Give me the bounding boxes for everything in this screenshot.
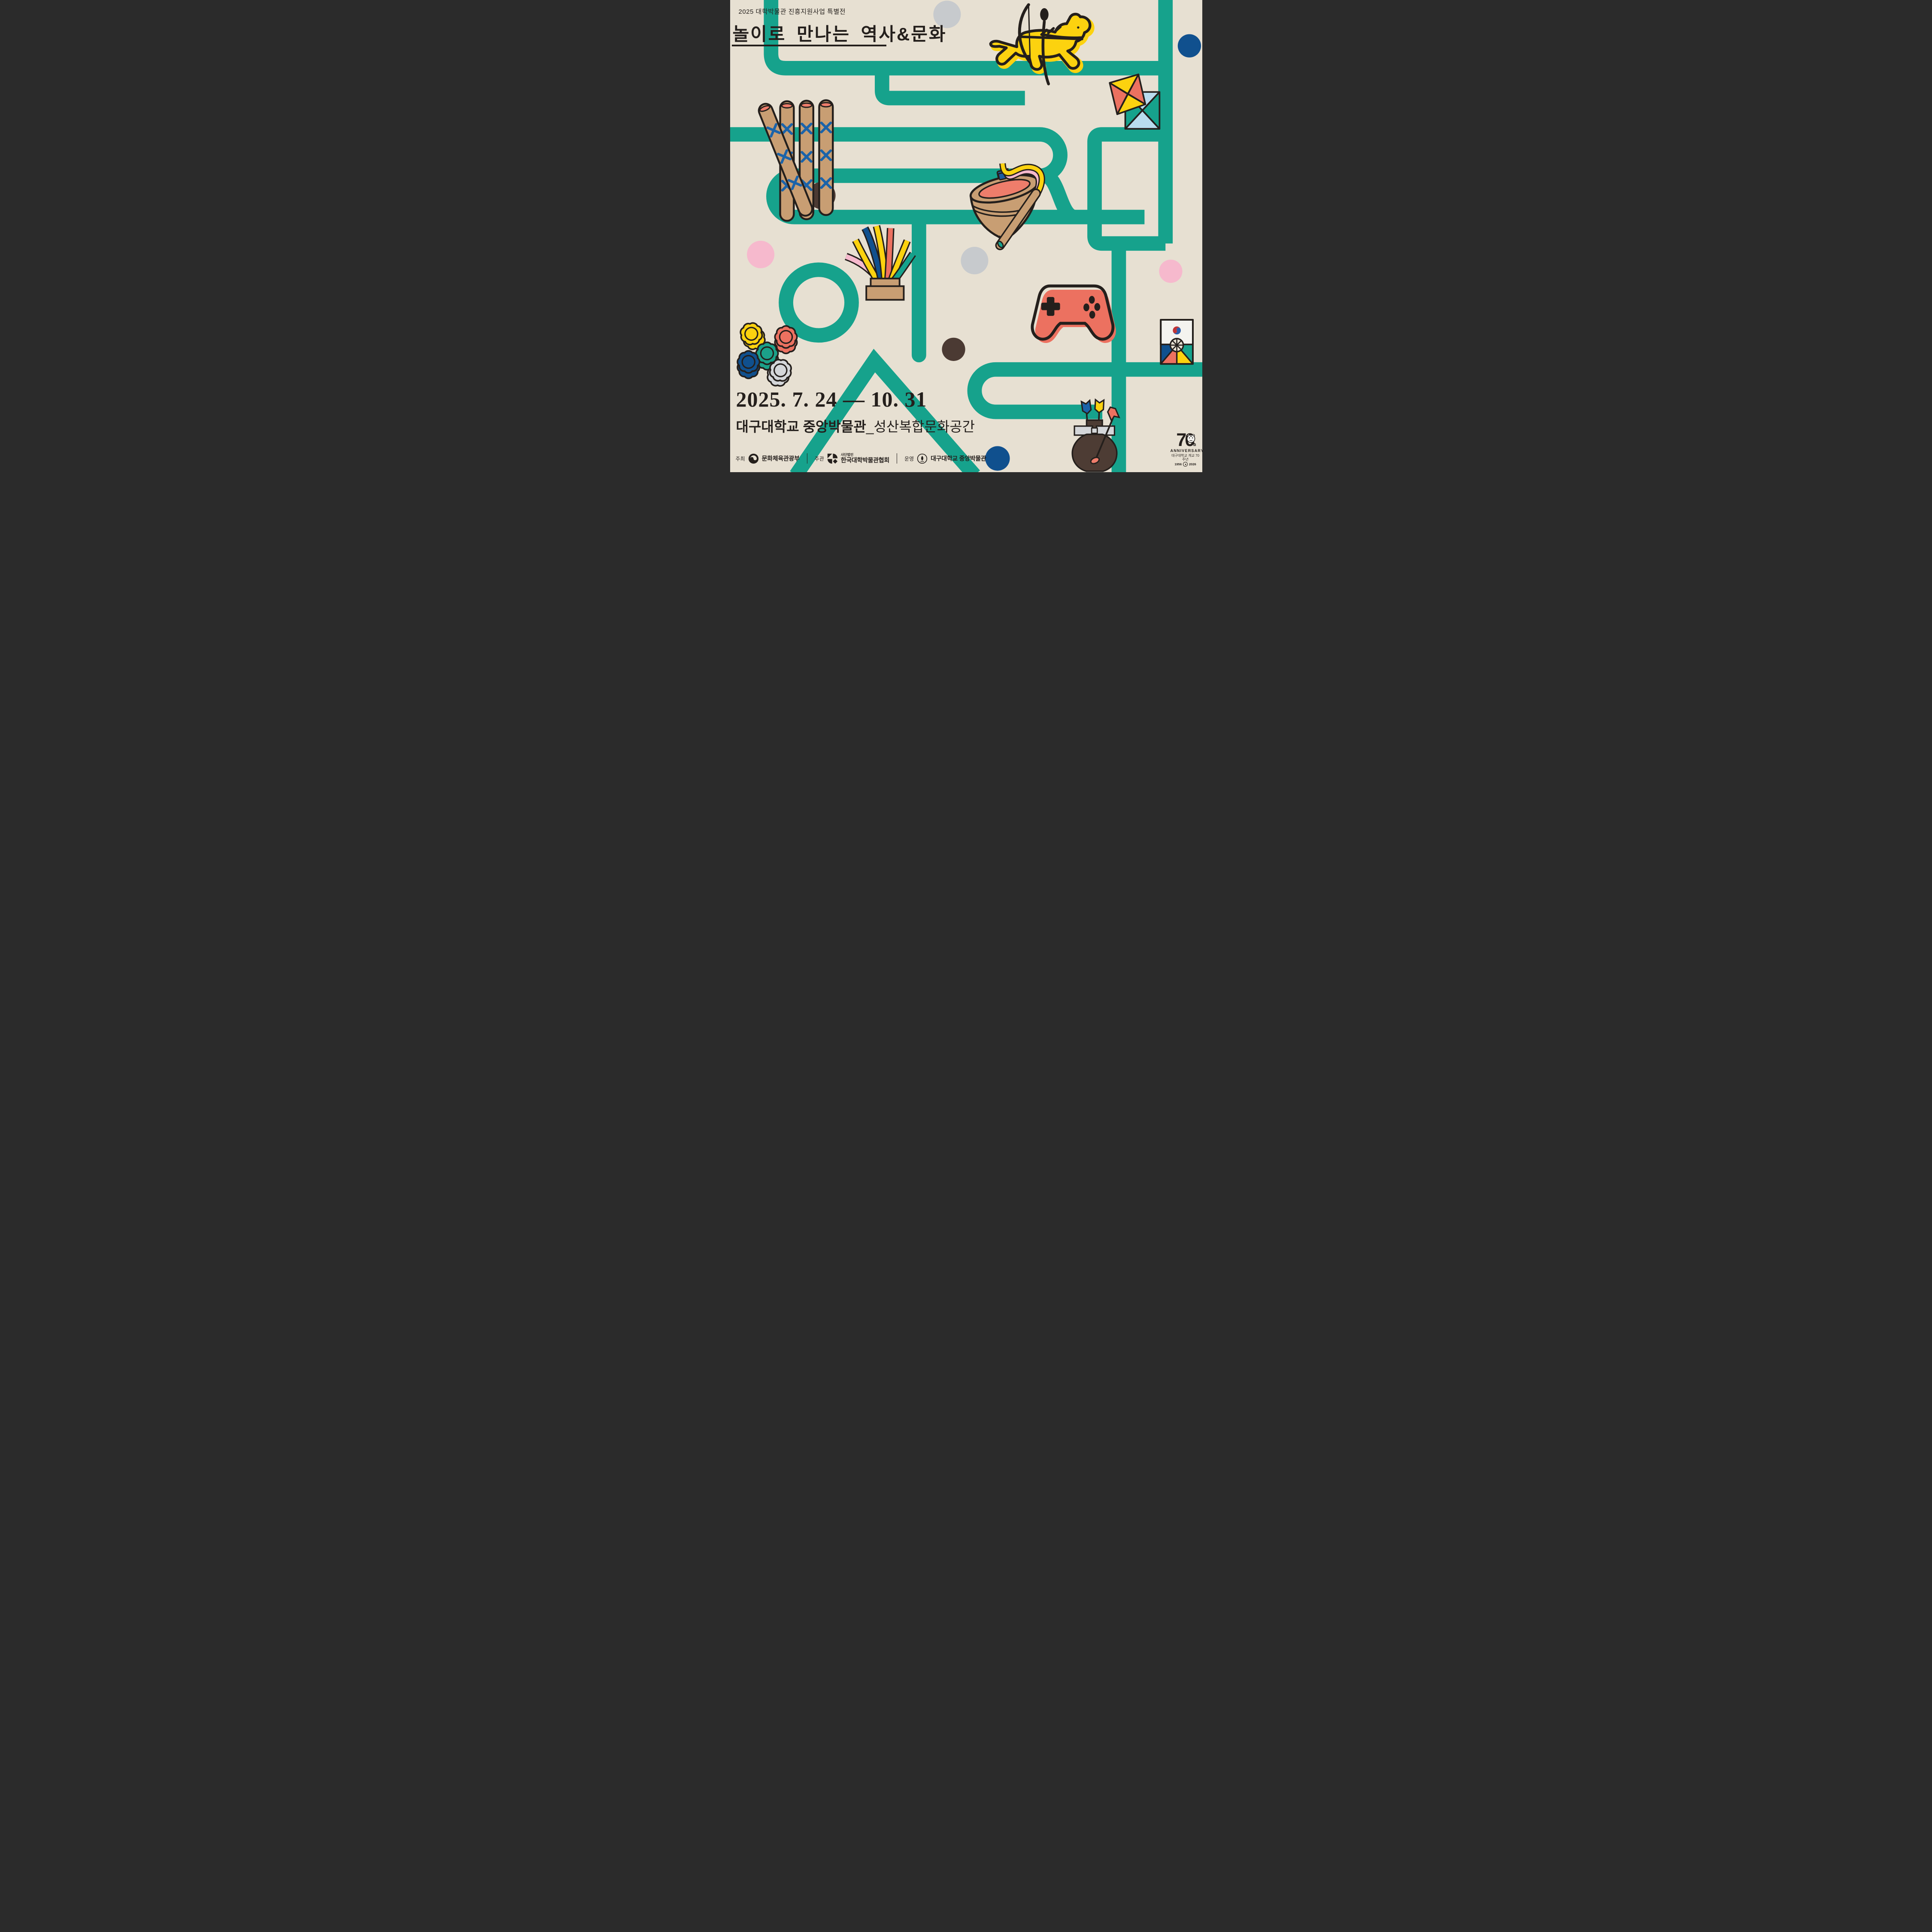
host-label: 주최 [736, 455, 745, 462]
host-name: 문화체육관광부 [762, 454, 800, 463]
game-controller-icon [1032, 286, 1116, 343]
operator-label: 운영 [904, 455, 914, 462]
tiger-mascot-icon [1186, 434, 1196, 444]
dot-navy [1177, 34, 1201, 58]
operator-name: 대구대학교 중앙박물관 [931, 454, 986, 463]
footer-divider [897, 453, 897, 464]
kaum-logo-icon [827, 453, 838, 464]
kites-icon [1110, 74, 1159, 129]
footer-credits: 주최 문화체육관광부 주관 사단법인 한국대학박물관협회 운영 [736, 452, 986, 465]
ttakji-flag-card-icon [1161, 320, 1193, 364]
dot-navy [985, 446, 1010, 470]
operator-block: 운영 대구대학교 중앙박물관 [904, 453, 986, 464]
dot-pink [1159, 260, 1182, 283]
anniversary-year-from: 1956 [1174, 463, 1182, 466]
dot-brown [942, 338, 965, 361]
footer-divider [807, 453, 807, 464]
exhibition-poster: 2025 대학박물관 진흥지원사업 특별전 놀이로 만나는 역사&문화 2025… [730, 0, 1202, 472]
yut-stick [819, 100, 833, 215]
dot-pink [747, 241, 774, 268]
dot-gray [961, 247, 988, 274]
daegu-university-seal-icon [917, 453, 928, 464]
mcst-logo-icon [748, 453, 759, 464]
exhibition-series-label: 2025 대학박물관 진흥지원사업 특별전 [739, 7, 846, 16]
venue-space: _성산복합문화공간 [866, 419, 975, 434]
anniversary-number: 70th [1176, 431, 1194, 449]
title-underline [732, 45, 886, 46]
exhibition-dates: 2025. 7. 24 — 10. 31 [736, 387, 927, 412]
anniversary-line: 대구대학교 개교 70주년 [1171, 454, 1201, 462]
venue-line: 대구대학교 중앙박물관_성산복합문화공간 [736, 416, 975, 436]
organizer-name: 한국대학박물관협회 [841, 457, 889, 464]
host-block: 주최 문화체육관광부 [736, 453, 800, 464]
anniversary-years: 1956 2026 [1171, 462, 1201, 467]
organizer-block: 주관 사단법인 한국대학박물관협회 [815, 453, 889, 464]
poster-title: 놀이로 만나는 역사&문화 [733, 20, 947, 46]
anniversary-year-to: 2026 [1189, 463, 1196, 466]
venue-name: 대구대학교 중앙박물관 [736, 419, 866, 434]
play-badge-icon [1183, 462, 1188, 467]
70th-anniversary-mark: 70th ANNIVERSARY 대구대학교 개교 70주년 1956 2026 [1171, 431, 1201, 467]
organizer-label: 주관 [815, 455, 824, 462]
flower-game-pieces-icon [736, 319, 797, 390]
